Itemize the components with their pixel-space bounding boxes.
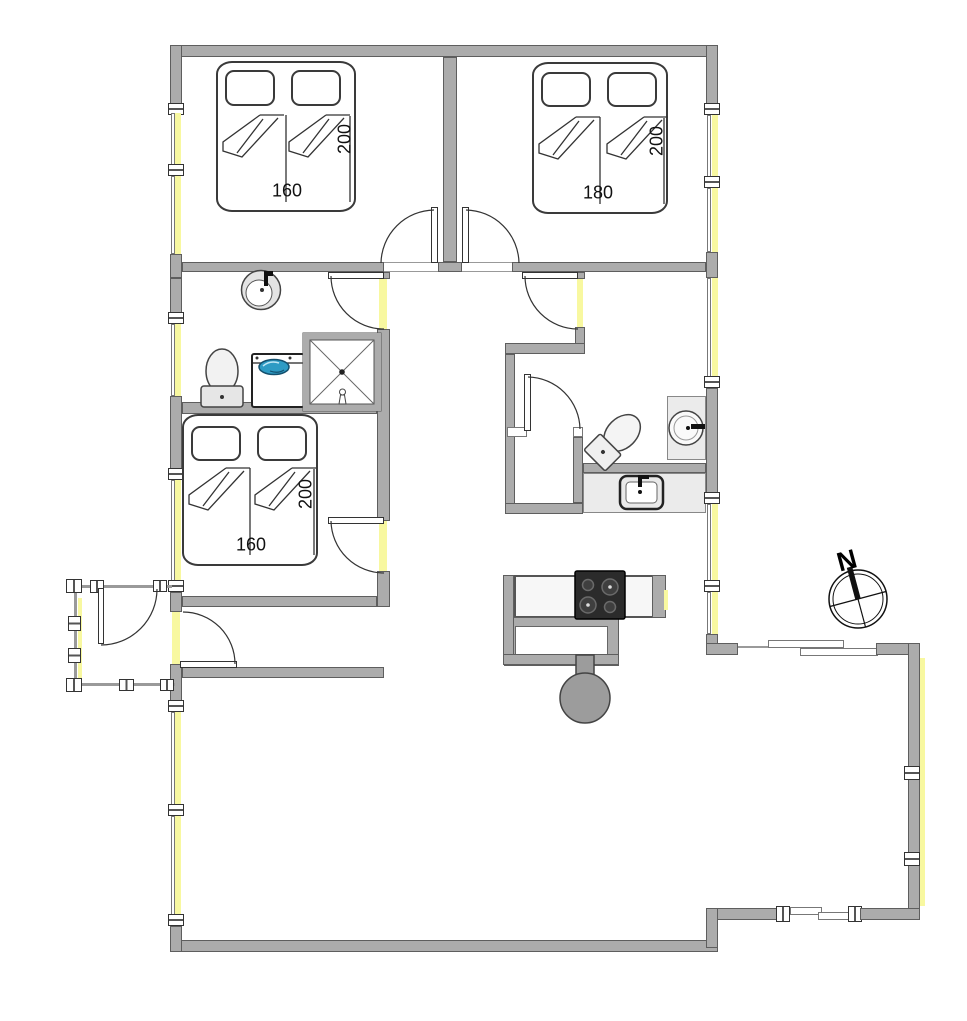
- wall: [503, 575, 514, 665]
- pillow: [257, 426, 307, 461]
- porch-post: [66, 579, 82, 593]
- pillow: [291, 70, 341, 106]
- wall: [377, 329, 390, 521]
- wall: [170, 45, 182, 105]
- window-light: [175, 712, 181, 806]
- window-post: [704, 492, 720, 504]
- window-light: [175, 816, 181, 916]
- entrance-door-leaf: [180, 661, 237, 668]
- wall: [706, 643, 738, 655]
- bed-width-label: 160: [272, 181, 302, 202]
- window-post: [168, 312, 184, 324]
- wall: [182, 667, 384, 678]
- wall: [170, 278, 182, 314]
- window-post: [704, 580, 720, 592]
- window-post: [168, 164, 184, 176]
- window-light: [712, 188, 718, 252]
- wall: [512, 262, 706, 272]
- porch-edge: [74, 585, 77, 685]
- window-post: [704, 376, 720, 388]
- bed-length-label: 200: [647, 126, 668, 156]
- entrance-door-opening: [172, 612, 180, 664]
- wall: [503, 654, 619, 665]
- window-light: [175, 113, 181, 168]
- window-post: [168, 914, 184, 926]
- bedroom1-door-opening: [384, 262, 438, 272]
- washing-machine: [252, 354, 304, 407]
- toilet: [201, 349, 243, 407]
- floor-plan: 160 200 180 200 160 200 N: [0, 0, 967, 1021]
- wall: [170, 254, 182, 278]
- wc-door-leaf: [522, 272, 578, 279]
- pillow: [225, 70, 275, 106]
- window-post: [168, 700, 184, 712]
- window-light: [712, 504, 718, 582]
- pillow: [191, 426, 241, 461]
- wall: [573, 437, 583, 503]
- window-glass: [707, 115, 711, 178]
- window-post: [704, 103, 720, 115]
- wall: [377, 571, 390, 607]
- wall: [170, 396, 182, 470]
- wall: [714, 908, 778, 920]
- bed-length-label: 200: [296, 479, 317, 509]
- window-light: [175, 480, 181, 582]
- wall: [505, 343, 585, 354]
- window-light: [712, 115, 718, 178]
- plan-details: [0, 0, 967, 1021]
- wall: [706, 252, 718, 278]
- wall: [443, 57, 457, 262]
- wall: [170, 45, 718, 57]
- pillow: [541, 72, 591, 107]
- porch-post: [66, 678, 82, 692]
- sliding-door-panel: [768, 640, 844, 648]
- porch-post: [68, 648, 81, 663]
- wall: [706, 388, 718, 494]
- bedroom3-door-opening: [379, 521, 387, 571]
- window-post: [168, 804, 184, 816]
- window-post: [704, 176, 720, 188]
- terrace-threshold: [738, 646, 772, 648]
- wall: [182, 596, 377, 607]
- wall: [170, 926, 182, 952]
- closet-door-jamb: [573, 427, 583, 437]
- window-glass: [707, 188, 711, 252]
- pillow: [607, 72, 657, 107]
- bed-width-label: 180: [583, 183, 613, 204]
- window-light: [712, 278, 718, 378]
- bathroom-door-opening: [379, 279, 387, 329]
- wall: [182, 402, 377, 414]
- window-light: [175, 176, 181, 254]
- wall: [170, 592, 182, 612]
- kitchen-lower-cabinet-top: [515, 626, 608, 657]
- wall: [583, 463, 706, 473]
- wall: [438, 262, 462, 272]
- wall: [860, 908, 920, 920]
- window-glass: [707, 504, 711, 582]
- compass-north-label: N: [834, 544, 861, 579]
- porch-post: [160, 679, 174, 691]
- bedroom3-door-leaf: [328, 517, 384, 524]
- closet-door-leaf: [524, 374, 531, 431]
- bedroom2-door-leaf: [462, 207, 469, 263]
- shower: [303, 333, 381, 411]
- window-light: [664, 590, 668, 610]
- window-light: [712, 592, 718, 634]
- wc-door-opening: [577, 279, 583, 327]
- window-glass: [818, 912, 850, 920]
- window-glass: [707, 592, 711, 634]
- window-post: [776, 906, 790, 922]
- kitchen-worktop: [514, 575, 658, 618]
- window-glass: [707, 278, 711, 378]
- wall: [706, 908, 718, 948]
- bedroom1-door-leaf: [431, 207, 438, 263]
- porch-post: [119, 679, 134, 691]
- window-light: [78, 598, 82, 678]
- window-post: [904, 852, 920, 866]
- porch-gate-leaf: [98, 588, 104, 644]
- kitchen-sink-counter: [583, 473, 706, 513]
- bed-length-label: 200: [335, 124, 356, 154]
- bathroom-door-leaf: [328, 272, 384, 279]
- porch-post: [68, 616, 81, 631]
- wall: [170, 940, 718, 952]
- wall: [706, 45, 718, 105]
- bathroom-sink: [242, 271, 281, 310]
- window-light: [175, 324, 181, 396]
- wall: [505, 503, 583, 514]
- bedroom2-door-opening: [462, 262, 512, 272]
- wall: [182, 262, 384, 272]
- window-light: [920, 658, 925, 906]
- window-post: [904, 766, 920, 780]
- porch-post: [153, 580, 167, 592]
- bed-width-label: 160: [236, 535, 266, 556]
- toilet: [584, 407, 648, 471]
- vanity-counter: [667, 396, 706, 460]
- sliding-door-panel: [800, 648, 878, 656]
